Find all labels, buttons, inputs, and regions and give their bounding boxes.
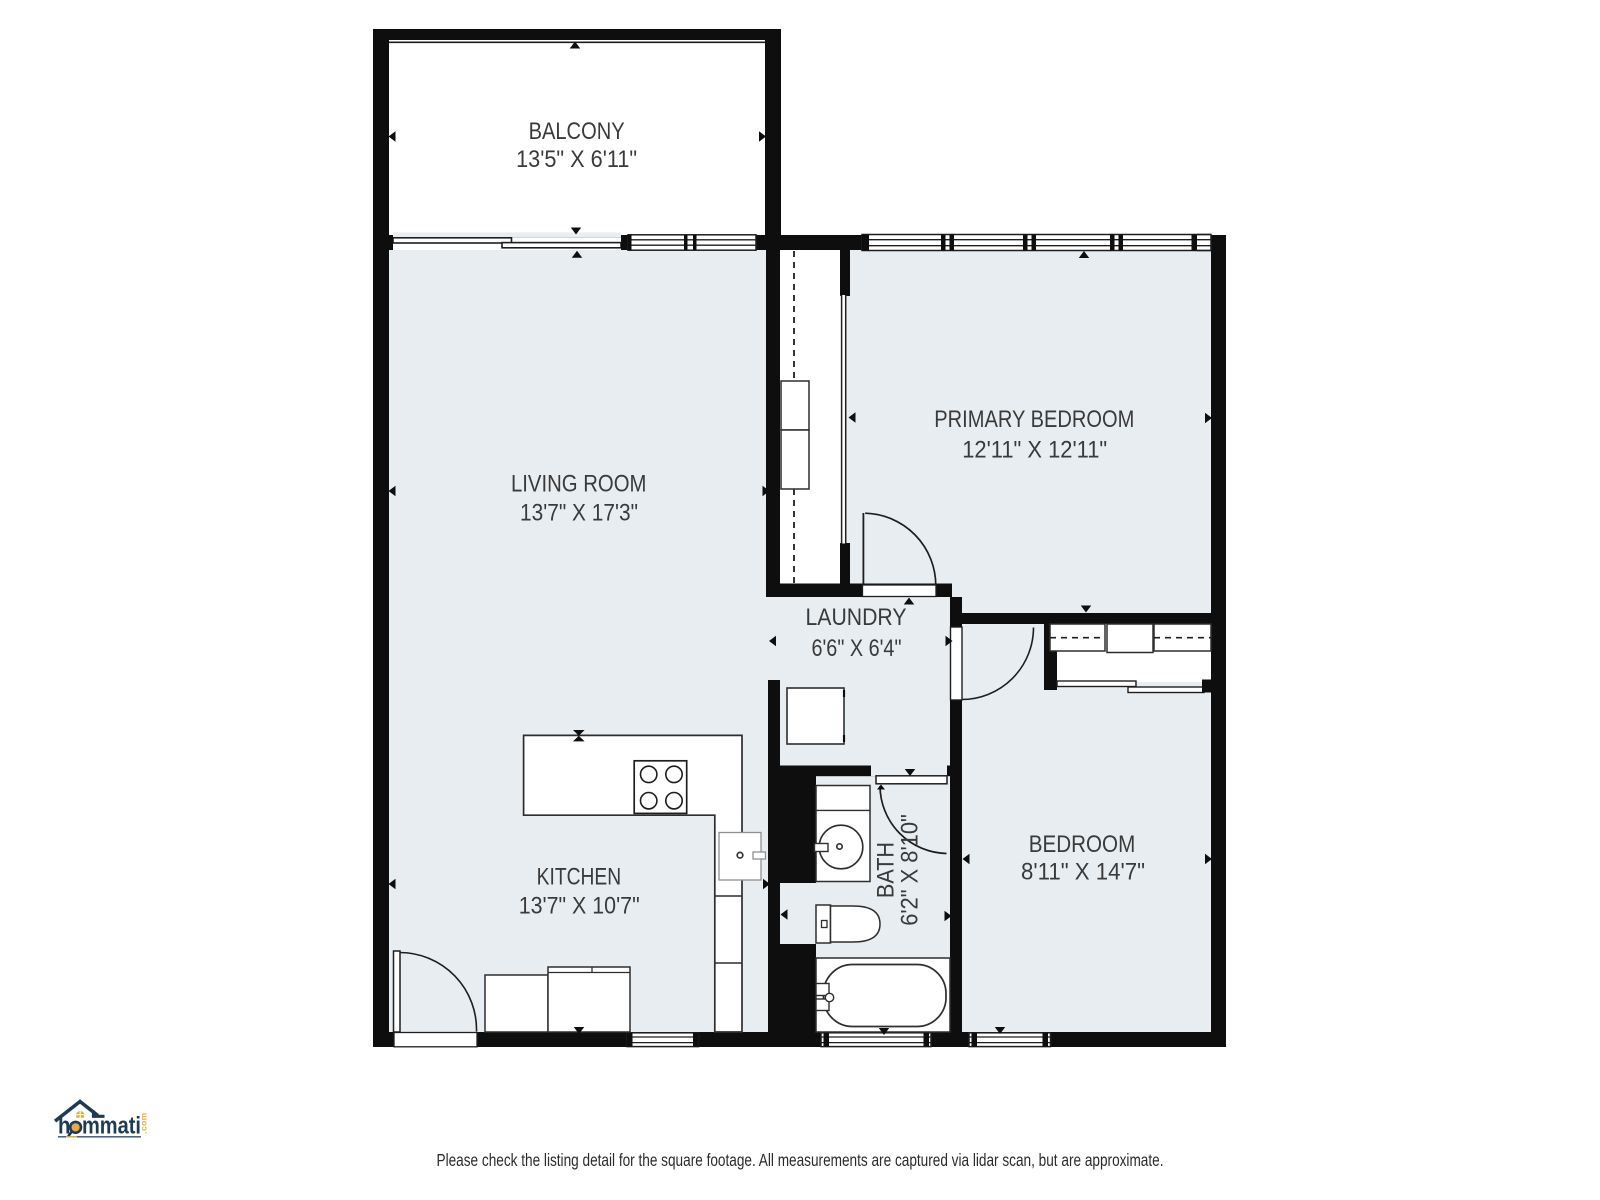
svg-text:13'7" X 17'3": 13'7" X 17'3" — [520, 500, 638, 527]
svg-text:BATH: BATH — [873, 842, 900, 898]
svg-text:BALCONY: BALCONY — [529, 118, 625, 145]
svg-text:LAUNDRY: LAUNDRY — [806, 604, 907, 631]
svg-text:BEDROOM: BEDROOM — [1029, 831, 1136, 858]
svg-text:13'5" X 6'11": 13'5" X 6'11" — [516, 146, 637, 173]
svg-text:6'6" X 6'4": 6'6" X 6'4" — [812, 635, 902, 662]
svg-text:KITCHEN: KITCHEN — [537, 864, 622, 891]
svg-text:LIVING ROOM: LIVING ROOM — [511, 471, 647, 498]
svg-text:mmati: mmati — [82, 1113, 141, 1140]
svg-text:13'7" X 10'7": 13'7" X 10'7" — [519, 893, 640, 920]
svg-text:6'2" X 8'10": 6'2" X 8'10" — [897, 814, 924, 926]
svg-text:Please check the listing detai: Please check the listing detail for the … — [437, 1150, 1164, 1170]
svg-text:8'11" X 14'7": 8'11" X 14'7" — [1021, 859, 1145, 886]
svg-text:12'11" X 12'11": 12'11" X 12'11" — [962, 437, 1107, 464]
svg-text:.com: .com — [139, 1112, 149, 1133]
svg-text:PRIMARY BEDROOM: PRIMARY BEDROOM — [934, 406, 1134, 433]
